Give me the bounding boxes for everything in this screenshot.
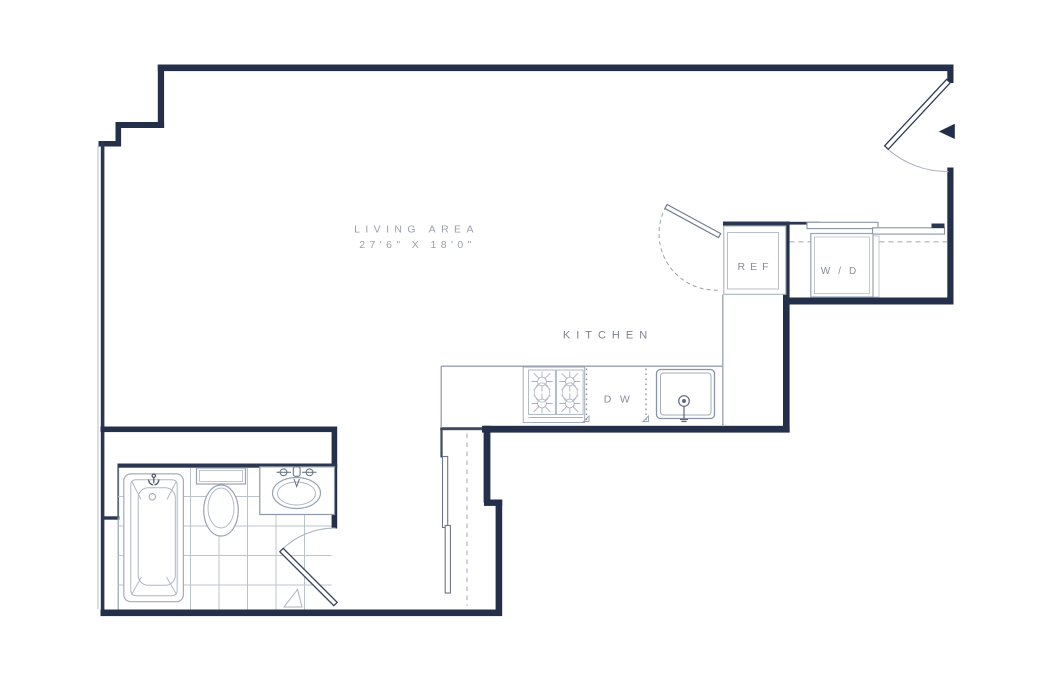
svg-text:REF: REF: [738, 261, 774, 273]
svg-text:27'6" X 18'0": 27'6" X 18'0": [359, 239, 476, 251]
svg-text:LIVING AREA: LIVING AREA: [354, 224, 479, 236]
svg-text:DW: DW: [604, 394, 639, 406]
svg-text:W/D: W/D: [821, 266, 864, 277]
svg-text:KITCHEN: KITCHEN: [563, 330, 653, 342]
